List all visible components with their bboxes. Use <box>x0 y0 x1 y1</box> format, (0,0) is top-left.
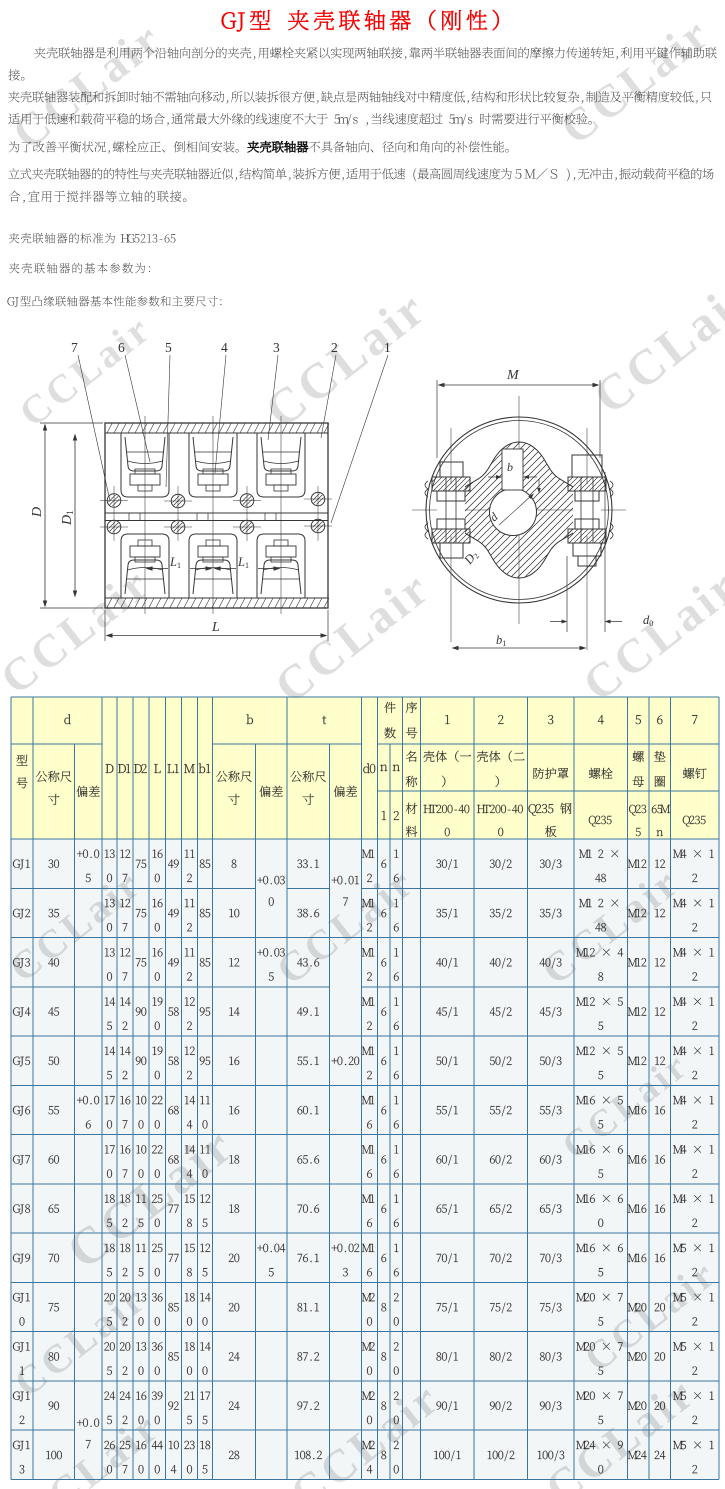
svg-text:2: 2 <box>331 340 338 355</box>
svg-text:6: 6 <box>118 340 125 355</box>
svg-text:b: b <box>507 460 513 474</box>
svg-text:4: 4 <box>221 340 228 355</box>
svg-text:D: D <box>30 507 45 518</box>
svg-text:M: M <box>506 368 520 383</box>
svg-text:L: L <box>211 620 220 635</box>
svg-text:7: 7 <box>71 340 78 355</box>
svg-text:3: 3 <box>273 340 280 355</box>
svg-text:5: 5 <box>165 340 172 355</box>
svg-text:1: 1 <box>384 340 391 355</box>
